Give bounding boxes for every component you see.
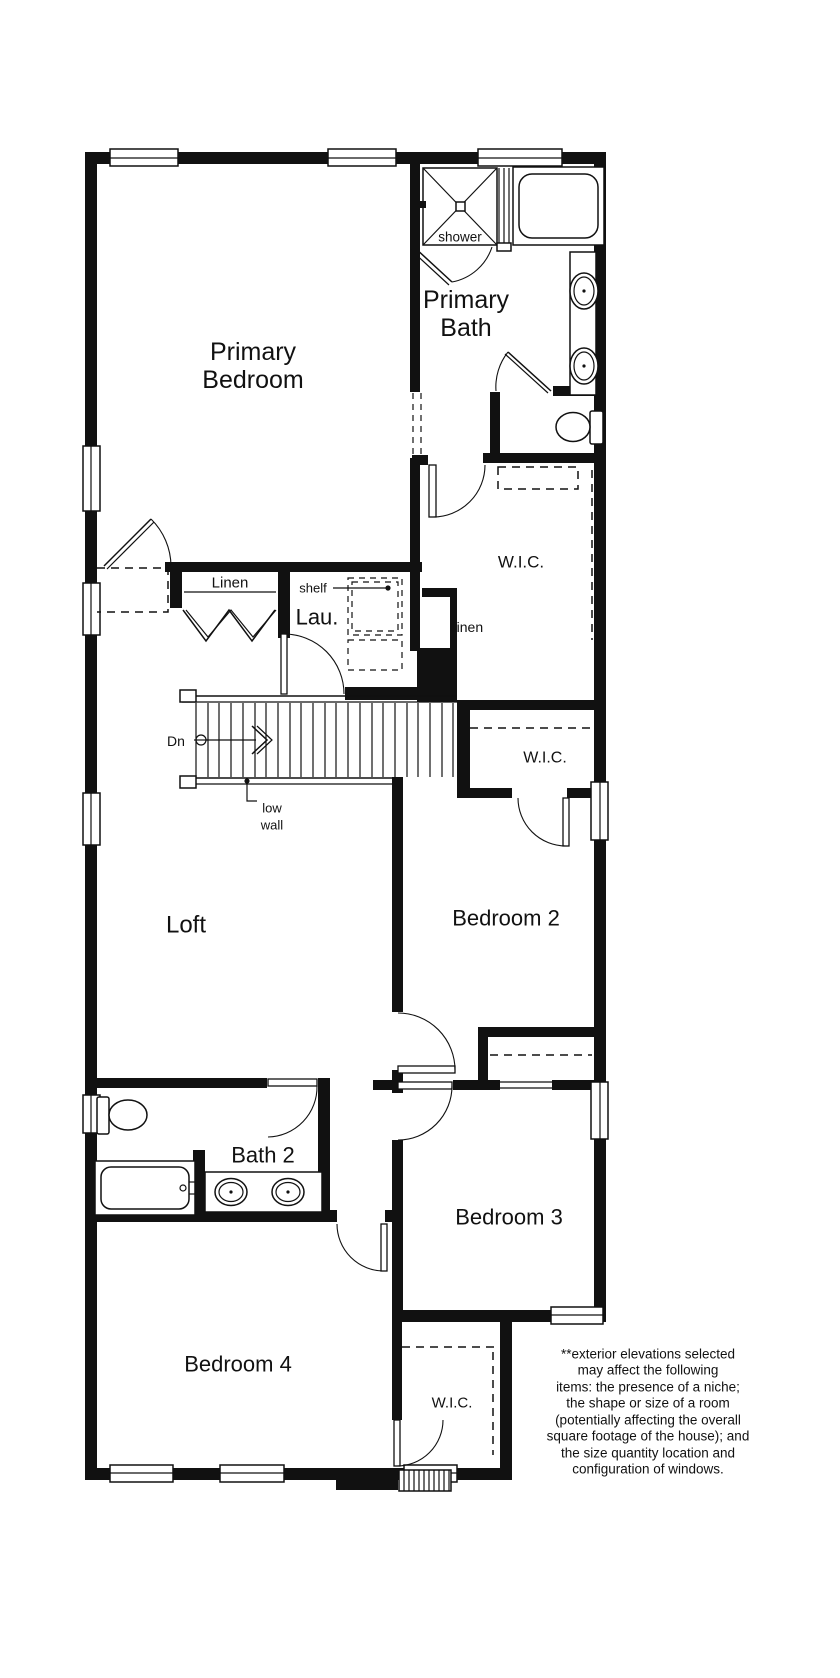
closet-shelving-dashed	[97, 467, 592, 1455]
window	[110, 1465, 173, 1482]
stair-rail-cap	[180, 776, 196, 788]
bath2-vanity	[205, 1172, 322, 1212]
room-label-primary-bath: Primary	[423, 286, 510, 314]
window	[478, 149, 562, 166]
disclaimer-text: **exterior elevations selected may affec…	[547, 1347, 750, 1477]
labels: Primary Bedroom Primary Bath shower W.I.…	[166, 230, 567, 1412]
window	[110, 149, 178, 166]
windows	[83, 149, 608, 1482]
disclaimer-line: may affect the following	[578, 1363, 719, 1378]
door-primary-toilet	[496, 352, 551, 393]
window	[83, 793, 100, 845]
room-label-laundry: Lau.	[296, 605, 339, 630]
room-label-bedroom2: Bedroom 2	[452, 906, 560, 931]
door-wic-bedroom4	[394, 1420, 443, 1466]
disclaimer-line: the size quantity location and	[561, 1446, 735, 1461]
door-bedroom2	[398, 1013, 455, 1073]
window	[83, 583, 100, 635]
low-wall-leader	[244, 778, 257, 801]
room-label-primary-bedroom: Bedroom	[202, 366, 303, 394]
room-label-wic-bedroom4: W.I.C.	[432, 1395, 473, 1412]
window	[220, 1465, 284, 1482]
room-label-linen-hall: Linen	[212, 575, 249, 592]
stairs	[180, 690, 457, 801]
cased-opening-primary-bath	[413, 393, 421, 456]
foundation-vent	[399, 1470, 451, 1491]
washer-dryer-dashed	[348, 578, 402, 670]
disclaimer-line: **exterior elevations selected	[561, 1347, 735, 1362]
window	[591, 782, 608, 840]
door-wic-bedroom2	[518, 798, 569, 846]
door-laundry	[281, 634, 344, 694]
door-bedroom3	[398, 1082, 452, 1140]
door-wic-primary	[429, 465, 485, 517]
stairs-down-arrow	[194, 726, 272, 754]
bath2-toilet	[97, 1097, 147, 1134]
annotation-shower: shower	[438, 230, 482, 245]
annotation-low-wall: wall	[260, 818, 284, 833]
shower	[411, 168, 511, 285]
room-label-bedroom4: Bedroom 4	[184, 1352, 292, 1377]
annotation-stairs-down: Dn	[167, 733, 185, 749]
door-primary-bedroom	[104, 519, 171, 569]
floor-plan-drawing: Primary Bedroom Primary Bath shower W.I.…	[0, 0, 840, 1678]
bath2-tub	[95, 1161, 195, 1215]
room-label-bedroom3: Bedroom 3	[455, 1205, 563, 1230]
disclaimer-line: items: the presence of a niche;	[556, 1380, 740, 1395]
door-bath2	[268, 1079, 317, 1137]
shower-valve	[419, 201, 426, 208]
primary-tub	[513, 167, 604, 245]
disclaimer-line: (potentially affecting the overall	[555, 1413, 741, 1428]
annotation-low-wall: low	[262, 801, 282, 816]
cased-opening-bedroom3-closet	[500, 1082, 552, 1088]
stair-rail-cap	[180, 690, 196, 702]
floor-plan-page: Primary Bedroom Primary Bath shower W.I.…	[0, 0, 840, 1678]
annotation-shelf: shelf	[299, 581, 327, 596]
disclaimer-line: the shape or size of a room	[566, 1396, 730, 1411]
bifold-doors-linen	[183, 610, 276, 641]
disclaimer-line: configuration of windows.	[572, 1462, 724, 1477]
window	[328, 149, 396, 166]
window	[551, 1307, 603, 1324]
window	[591, 1082, 608, 1139]
walls	[85, 152, 606, 1490]
room-label-primary-bath: Bath	[440, 314, 491, 342]
shelf-leader	[333, 585, 391, 590]
room-label-primary-bedroom: Primary	[210, 338, 297, 366]
fixtures	[95, 167, 604, 1491]
primary-vanity	[570, 252, 598, 395]
window	[83, 446, 100, 511]
room-label-wic-primary: W.I.C.	[498, 553, 544, 572]
room-label-bath2: Bath 2	[231, 1143, 295, 1168]
shower-glass	[497, 168, 511, 251]
room-label-wic-bedroom2: W.I.C.	[523, 750, 567, 767]
door-bedroom4	[337, 1224, 387, 1271]
room-label-linen-upper: Linen	[449, 619, 483, 635]
primary-toilet	[556, 411, 603, 444]
room-label-loft: Loft	[166, 912, 206, 939]
disclaimer-line: square footage of the house); and	[547, 1429, 750, 1444]
